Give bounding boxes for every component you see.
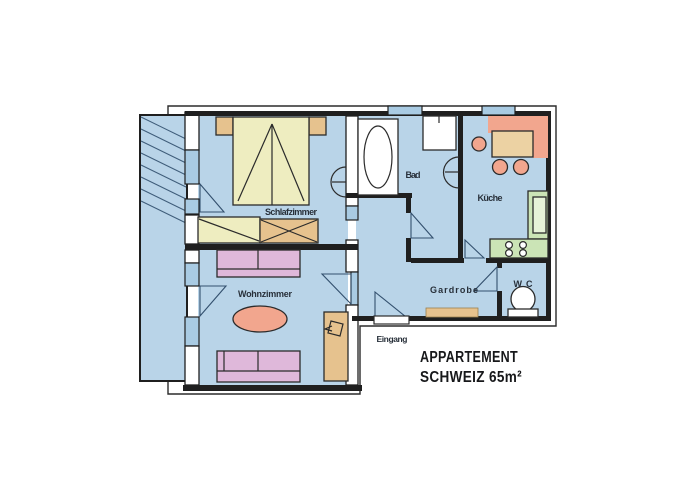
kitchen-bottom-wall	[411, 258, 464, 263]
bedroom-window	[185, 150, 199, 184]
floorplan-svg: Schlafzimmer Wohnzimmer Bad Küche Gardro…	[0, 0, 700, 500]
plan-title: APPARTEMENT SCHWEIZ 65m²	[420, 349, 522, 386]
entrance-label: Eingang	[377, 334, 408, 344]
chair-icon	[514, 160, 529, 175]
bathroom-label: Bad	[406, 170, 421, 180]
nightstand-left-icon	[216, 117, 233, 135]
living-room-window-1	[185, 263, 199, 286]
wc-wall	[497, 263, 502, 268]
coffee-table-icon	[233, 306, 287, 332]
bedroom-label: Schlafzimmer	[265, 207, 317, 217]
bathroom-window	[388, 106, 422, 115]
bottom-wall-right-block	[352, 316, 374, 321]
hallway-wall	[406, 238, 411, 262]
entrance-door-leaf	[374, 316, 409, 324]
bedroom-door-panel	[346, 206, 358, 220]
stove-counter-icon	[490, 239, 548, 258]
hallway-wall	[406, 196, 411, 213]
kitchen-bottom-wall	[486, 258, 551, 263]
title-line-1: APPARTEMENT	[420, 349, 518, 366]
bottom-wall-left-block	[183, 385, 362, 391]
toilet-icon	[511, 287, 535, 312]
wall-segment	[185, 112, 199, 150]
balcony	[140, 115, 187, 381]
wall-segment	[346, 116, 358, 206]
living-room-window-2	[185, 317, 199, 346]
bedroom-balcony-door-panel	[185, 199, 199, 214]
living-room-door-panel	[351, 272, 358, 305]
corner-bench-icon	[533, 116, 548, 158]
wc-wall	[497, 291, 502, 316]
toilet-tank	[508, 309, 538, 317]
floorplan-canvas: Schlafzimmer Wohnzimmer Bad Küche Gardro…	[0, 0, 700, 500]
kitchen-window	[482, 106, 515, 115]
kitchen-label: Küche	[478, 193, 503, 203]
balcony-floor	[140, 115, 187, 381]
rug-icon	[426, 308, 478, 317]
bathtub-basin	[364, 126, 392, 188]
wall-segment	[185, 215, 199, 244]
wall-segment	[185, 346, 199, 385]
sink-icon	[533, 197, 546, 233]
kitchen-table-icon	[492, 131, 533, 157]
bathroom-kitchen-wall	[458, 116, 463, 263]
bedroom-living-divider-wall	[185, 244, 358, 250]
double-bed-icon	[233, 117, 309, 205]
nightstand-right-icon	[309, 117, 326, 135]
chair-icon	[493, 160, 508, 175]
chair-icon	[472, 137, 486, 151]
living-room-label: Wohnzimmer	[238, 289, 292, 299]
title-line-2: SCHWEIZ 65m²	[420, 369, 522, 386]
hallway-label: Gardrobe	[430, 285, 478, 295]
wall-segment	[185, 250, 199, 263]
